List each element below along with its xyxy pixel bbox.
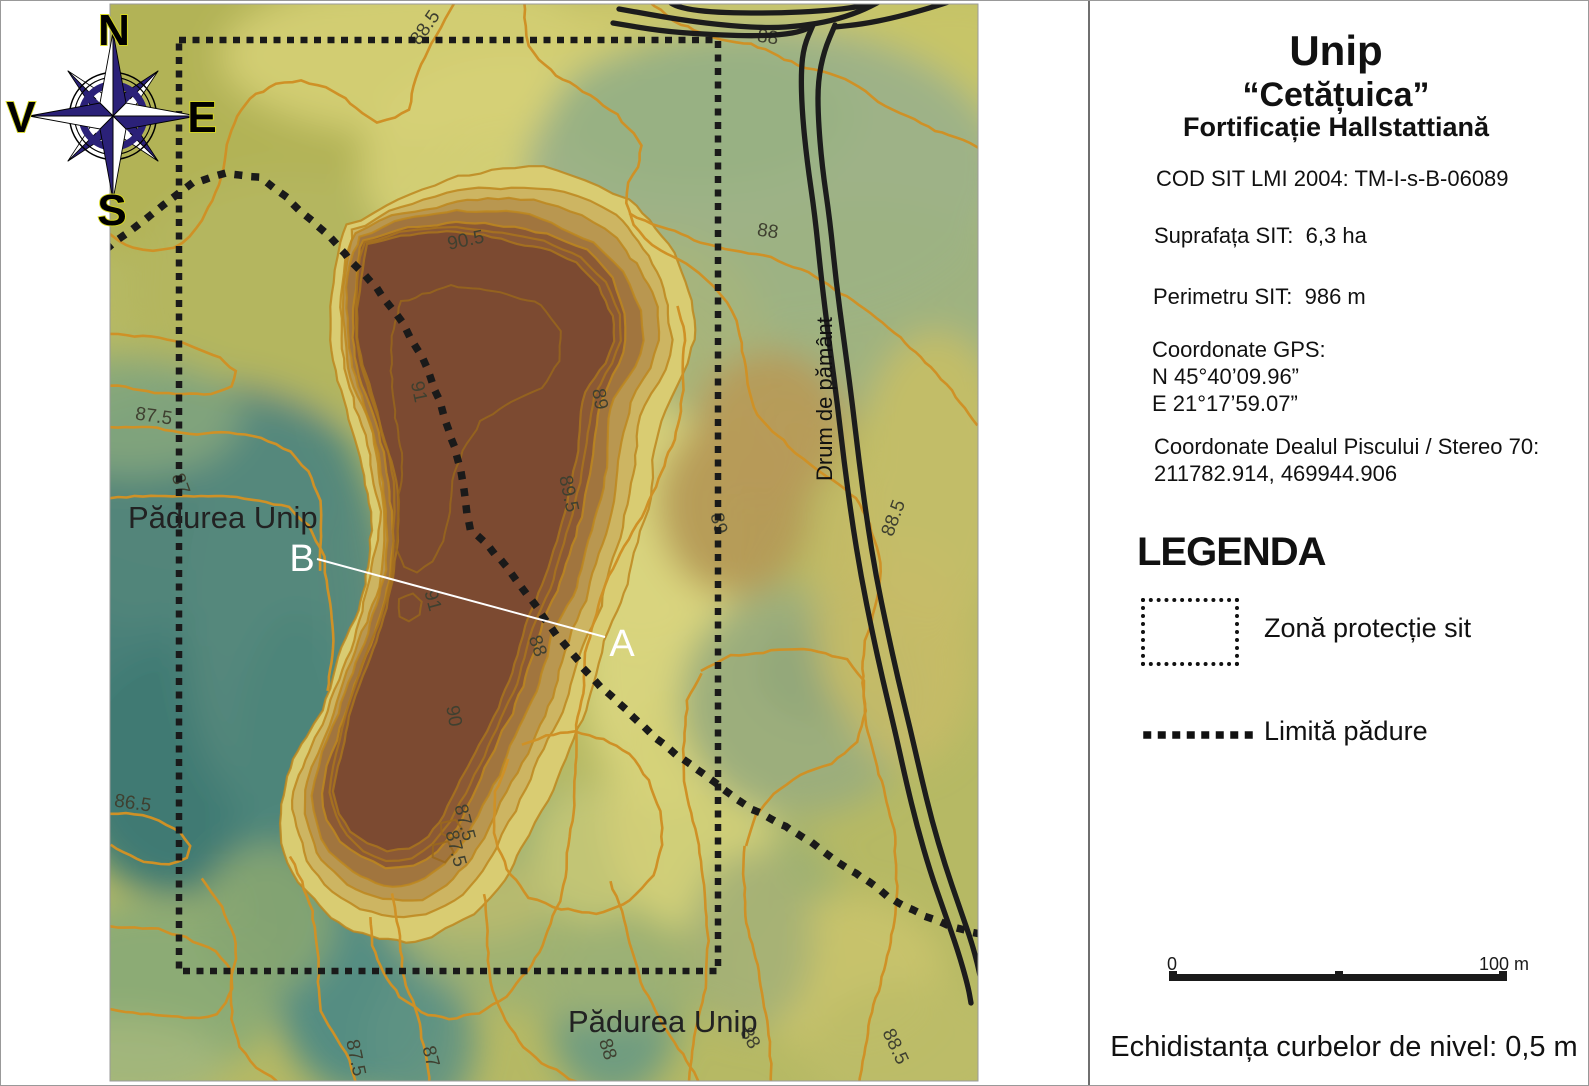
svg-text:100 m: 100 m [1479, 954, 1529, 974]
svg-text:N: N [98, 6, 130, 55]
svg-text:90: 90 [441, 704, 465, 728]
svg-text:Pădurea Unip: Pădurea Unip [568, 1004, 758, 1039]
svg-text:E: E [187, 93, 216, 142]
svg-text:V: V [6, 93, 36, 142]
svg-text:Drum de pământ: Drum de pământ [812, 317, 837, 481]
svg-text:88: 88 [756, 220, 780, 244]
svg-text:89: 89 [587, 387, 611, 411]
svg-text:A: A [609, 623, 635, 665]
svg-text:B: B [289, 538, 314, 580]
svg-text:0: 0 [1167, 954, 1177, 974]
svg-text:91: 91 [406, 379, 431, 404]
svg-text:Pădurea Unip: Pădurea Unip [128, 500, 318, 535]
svg-text:S: S [97, 186, 126, 235]
